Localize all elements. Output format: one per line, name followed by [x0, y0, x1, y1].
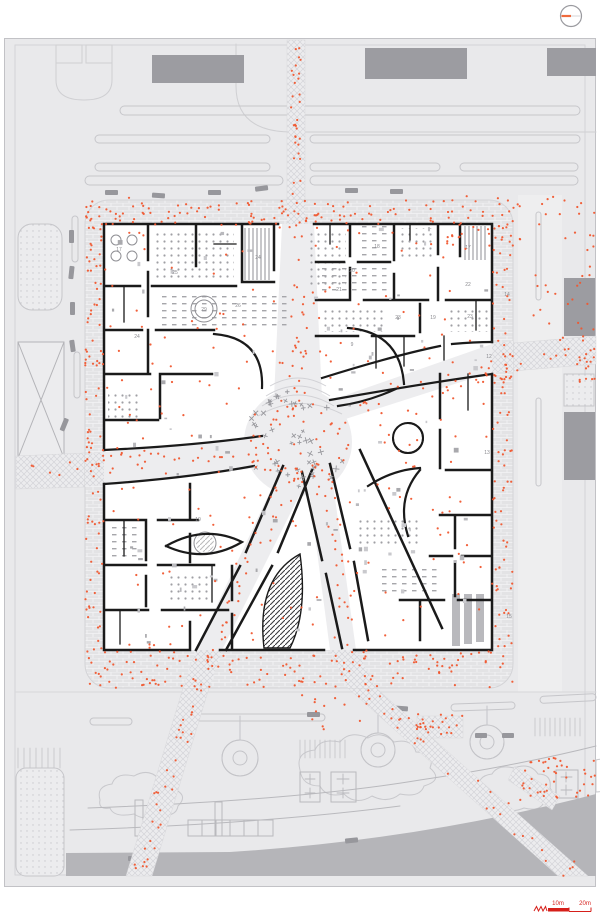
person-dot: [358, 232, 360, 234]
person-dot: [177, 204, 179, 206]
person-dot: [235, 563, 237, 565]
person-dot: [311, 464, 313, 466]
person-dot: [506, 367, 508, 369]
person-dot: [301, 367, 303, 369]
person-dot: [579, 359, 581, 361]
person-dot: [303, 296, 305, 298]
person-dot: [275, 419, 277, 421]
furniture-item: [125, 395, 127, 399]
furniture-item: [137, 549, 142, 552]
person-dot: [335, 564, 337, 566]
person-dot: [87, 211, 89, 213]
person-dot: [118, 350, 120, 352]
person-dot: [498, 203, 500, 205]
furniture-item: [177, 473, 179, 476]
scale-bar: 10m 20m: [534, 901, 591, 912]
person-dot: [497, 588, 499, 590]
furniture-item: [221, 232, 225, 235]
furniture-item: [379, 228, 384, 231]
person-dot: [266, 673, 268, 675]
person-dot: [157, 792, 159, 794]
person-dot: [325, 683, 327, 685]
person-dot: [533, 314, 535, 316]
person-dot: [513, 833, 515, 835]
person-dot: [447, 389, 449, 391]
person-dot: [407, 410, 409, 412]
person-dot: [132, 205, 134, 207]
person-dot: [220, 546, 222, 548]
person-dot: [314, 214, 316, 216]
person-dot: [582, 339, 584, 341]
person-dot: [363, 402, 365, 404]
person-dot: [539, 309, 541, 311]
person-dot: [85, 538, 87, 540]
person-dot: [498, 460, 500, 462]
person-dot: [283, 210, 285, 212]
person-dot: [491, 583, 493, 585]
person-dot: [502, 286, 504, 288]
person-dot: [156, 664, 158, 666]
person-dot: [503, 381, 505, 383]
person-dot: [292, 74, 294, 76]
person-dot: [204, 216, 206, 218]
person-dot: [93, 475, 95, 477]
person-dot: [146, 678, 148, 680]
person-dot: [590, 776, 592, 778]
person-dot: [58, 474, 60, 476]
furniture-item: [326, 522, 328, 525]
person-dot: [121, 673, 123, 675]
person-dot: [99, 298, 101, 300]
person-dot: [413, 661, 415, 663]
person-dot: [451, 235, 453, 237]
person-dot: [275, 489, 277, 491]
person-dot: [458, 236, 460, 238]
person-dot: [350, 595, 352, 597]
person-dot: [485, 436, 487, 438]
person-dot: [567, 303, 569, 305]
person-dot: [302, 356, 304, 358]
person-dot: [336, 246, 338, 248]
person-dot: [379, 695, 381, 697]
person-dot: [316, 493, 318, 495]
person-dot: [136, 310, 138, 312]
person-dot: [542, 761, 544, 763]
person-dot: [182, 731, 184, 733]
person-dot: [338, 606, 340, 608]
person-dot: [451, 199, 453, 201]
person-dot: [405, 462, 407, 464]
person-dot: [370, 214, 372, 216]
person-dot: [359, 720, 361, 722]
person-dot: [95, 463, 97, 465]
person-dot: [292, 193, 294, 195]
person-dot: [261, 604, 263, 606]
person-dot: [454, 435, 456, 437]
person-dot: [482, 215, 484, 217]
person-dot: [289, 667, 291, 669]
person-dot: [555, 772, 557, 774]
person-dot: [99, 611, 101, 613]
person-dot: [347, 617, 349, 619]
person-dot: [417, 713, 419, 715]
person-dot: [100, 236, 102, 238]
person-dot: [503, 464, 505, 466]
person-dot: [102, 520, 104, 522]
person-dot: [96, 360, 98, 362]
person-dot: [415, 242, 417, 244]
person-dot: [297, 341, 299, 343]
person-dot: [506, 414, 508, 416]
person-dot: [280, 470, 282, 472]
furniture-item: [296, 629, 300, 632]
furniture-item: [229, 466, 233, 471]
person-dot: [276, 410, 278, 412]
person-dot: [299, 158, 301, 160]
person-dot: [217, 666, 219, 668]
person-dot: [137, 584, 139, 586]
person-dot: [115, 218, 117, 220]
person-dot: [451, 664, 453, 666]
person-dot: [294, 142, 296, 144]
person-dot: [593, 356, 595, 358]
person-dot: [154, 223, 156, 225]
person-dot: [297, 144, 299, 146]
furniture-item: [210, 435, 212, 438]
person-dot: [448, 726, 450, 728]
person-dot: [467, 217, 469, 219]
furniture-item: [454, 448, 459, 453]
person-dot: [428, 668, 430, 670]
person-dot: [92, 340, 94, 342]
person-dot: [94, 523, 96, 525]
person-dot: [415, 413, 417, 415]
person-dot: [294, 236, 296, 238]
person-dot: [365, 683, 367, 685]
person-dot: [91, 442, 93, 444]
architectural-site-plan-page: 172524262429182021172223192391014121315 …: [0, 0, 600, 920]
person-dot: [90, 249, 92, 251]
person-dot: [592, 328, 594, 330]
person-dot: [422, 718, 424, 720]
person-dot: [429, 654, 431, 656]
furniture-item: [253, 350, 255, 354]
person-dot: [274, 487, 276, 489]
person-dot: [432, 720, 434, 722]
person-dot: [331, 481, 333, 483]
person-dot: [173, 775, 175, 777]
person-dot: [328, 473, 330, 475]
person-dot: [470, 653, 472, 655]
person-dot: [417, 726, 419, 728]
person-dot: [592, 235, 594, 237]
person-dot: [86, 458, 88, 460]
person-dot: [403, 311, 405, 313]
person-dot: [254, 532, 256, 534]
person-dot: [91, 521, 93, 523]
person-dot: [295, 405, 297, 407]
person-dot: [329, 286, 331, 288]
person-dot: [319, 675, 321, 677]
plan-layer: 172524262429182021172223192391014121315: [85, 200, 513, 688]
person-dot: [85, 215, 87, 217]
person-dot: [297, 78, 299, 80]
person-dot: [478, 608, 480, 610]
person-dot: [384, 441, 386, 443]
person-dot: [93, 303, 95, 305]
person-dot: [402, 656, 404, 658]
right-road: [518, 195, 562, 692]
person-dot: [339, 214, 341, 216]
person-dot: [84, 362, 86, 364]
person-dot: [275, 516, 277, 518]
person-dot: [312, 403, 314, 405]
furniture-item: [333, 529, 337, 531]
person-dot: [336, 660, 338, 662]
person-dot: [161, 412, 163, 414]
furniture-item: [351, 371, 355, 373]
person-dot: [539, 791, 541, 793]
person-dot: [506, 541, 508, 543]
person-dot: [545, 284, 547, 286]
person-dot: [298, 680, 300, 682]
person-dot: [399, 718, 401, 720]
person-dot: [529, 787, 531, 789]
person-dot: [93, 227, 95, 229]
person-dot: [472, 226, 474, 228]
person-dot: [580, 327, 582, 329]
person-dot: [161, 221, 163, 223]
person-dot: [347, 444, 349, 446]
person-dot: [151, 821, 153, 823]
person-dot: [166, 769, 168, 771]
person-dot: [149, 647, 151, 649]
person-dot: [103, 459, 105, 461]
person-dot: [253, 217, 255, 219]
person-dot: [187, 655, 189, 657]
furniture-item: [192, 585, 197, 588]
person-dot: [244, 557, 246, 559]
person-dot: [485, 661, 487, 663]
person-dot: [252, 639, 254, 641]
furniture-item: [317, 599, 322, 601]
person-dot: [222, 313, 224, 315]
person-dot: [379, 424, 381, 426]
person-dot: [379, 219, 381, 221]
person-dot: [499, 252, 501, 254]
person-dot: [521, 784, 523, 786]
person-dot: [262, 443, 264, 445]
person-dot: [218, 471, 220, 473]
person-dot: [432, 200, 434, 202]
person-dot: [98, 206, 100, 208]
person-dot: [179, 660, 181, 662]
person-dot: [229, 663, 231, 665]
person-dot: [226, 403, 228, 405]
person-dot: [522, 835, 524, 837]
person-dot: [494, 382, 496, 384]
person-dot: [578, 213, 580, 215]
person-dot: [89, 413, 91, 415]
person-dot: [578, 356, 580, 358]
person-dot: [414, 659, 416, 661]
person-dot: [497, 451, 499, 453]
person-dot: [446, 386, 448, 388]
person-dot: [429, 274, 431, 276]
person-dot: [151, 363, 153, 365]
person-dot: [93, 648, 95, 650]
person-dot: [358, 664, 360, 666]
person-dot: [323, 430, 325, 432]
person-dot: [500, 377, 502, 379]
person-dot: [249, 222, 251, 224]
person-dot: [246, 684, 248, 686]
person-dot: [98, 463, 100, 465]
room-number-label: 20: [349, 268, 355, 274]
person-dot: [590, 349, 592, 351]
person-dot: [495, 284, 497, 286]
person-dot: [246, 561, 248, 563]
person-dot: [255, 466, 257, 468]
person-dot: [109, 210, 111, 212]
person-dot: [587, 365, 589, 367]
site-plan-drawing: 172524262429182021172223192391014121315 …: [0, 0, 600, 920]
person-dot: [298, 56, 300, 58]
person-dot: [174, 215, 176, 217]
person-dot: [305, 220, 307, 222]
person-dot: [174, 222, 176, 224]
person-dot: [367, 409, 369, 411]
furniture-item: [130, 546, 133, 548]
person-dot: [98, 362, 100, 364]
person-dot: [314, 466, 316, 468]
furniture-item: [314, 297, 318, 300]
person-dot: [188, 489, 190, 491]
person-dot: [488, 245, 490, 247]
person-dot: [341, 554, 343, 556]
person-dot: [221, 456, 223, 458]
furniture-item: [138, 558, 143, 560]
furniture-item: [133, 443, 136, 447]
person-dot: [113, 510, 115, 512]
person-dot: [260, 669, 262, 671]
person-dot: [338, 597, 340, 599]
person-dot: [275, 223, 277, 225]
person-dot: [586, 303, 588, 305]
person-dot: [576, 285, 578, 287]
person-dot: [567, 348, 569, 350]
person-dot: [95, 395, 97, 397]
person-dot: [255, 454, 257, 456]
person-dot: [110, 455, 112, 457]
person-dot: [559, 213, 561, 215]
person-dot: [489, 686, 491, 688]
person-dot: [97, 626, 99, 628]
person-dot: [90, 447, 92, 449]
person-dot: [420, 606, 422, 608]
person-dot: [127, 422, 129, 424]
person-dot: [576, 206, 578, 208]
person-dot: [573, 860, 575, 862]
person-dot: [238, 387, 240, 389]
person-dot: [380, 412, 382, 414]
person-dot: [88, 515, 90, 517]
person-dot: [367, 360, 369, 362]
person-dot: [104, 667, 106, 669]
person-dot: [250, 213, 252, 215]
person-dot: [413, 465, 415, 467]
person-dot: [236, 581, 238, 583]
person-dot: [330, 423, 332, 425]
person-dot: [348, 670, 350, 672]
person-dot: [84, 364, 86, 366]
person-dot: [508, 802, 510, 804]
person-dot: [301, 681, 303, 683]
furniture-item: [363, 570, 367, 574]
person-dot: [168, 571, 170, 573]
person-dot: [221, 631, 223, 633]
person-dot: [304, 350, 306, 352]
person-dot: [313, 302, 315, 304]
person-dot: [299, 138, 301, 140]
person-dot: [282, 665, 284, 667]
furniture-item: [358, 489, 360, 492]
person-dot: [85, 391, 87, 393]
person-dot: [441, 511, 443, 513]
person-dot: [164, 681, 166, 683]
person-dot: [88, 227, 90, 229]
person-dot: [387, 211, 389, 213]
person-dot: [226, 621, 228, 623]
person-dot: [524, 770, 526, 772]
person-dot: [296, 472, 298, 474]
furniture-item: [364, 560, 367, 565]
person-dot: [365, 703, 367, 705]
person-dot: [385, 295, 387, 297]
person-dot: [87, 522, 89, 524]
furniture-item: [145, 634, 147, 638]
person-dot: [149, 343, 151, 345]
furniture-item: [480, 345, 483, 348]
person-dot: [337, 433, 339, 435]
person-dot: [565, 354, 567, 356]
person-dot: [279, 423, 281, 425]
room-number-label: 15: [506, 614, 512, 620]
person-dot: [98, 387, 100, 389]
furniture-item: [138, 609, 140, 613]
person-dot: [96, 304, 98, 306]
person-dot: [90, 662, 92, 664]
person-dot: [506, 439, 508, 441]
person-dot: [458, 553, 460, 555]
person-dot: [498, 566, 500, 568]
person-dot: [89, 431, 91, 433]
person-dot: [192, 460, 194, 462]
person-dot: [563, 199, 565, 201]
person-dot: [133, 661, 135, 663]
context-dotted-plot-bottom: [16, 768, 64, 876]
person-dot: [487, 228, 489, 230]
person-dot: [300, 59, 302, 61]
person-dot: [327, 203, 329, 205]
person-dot: [302, 421, 304, 423]
person-dot: [157, 453, 159, 455]
person-dot: [361, 218, 363, 220]
person-dot: [165, 472, 167, 474]
person-dot: [101, 563, 103, 565]
north-circle-icon: [561, 6, 582, 27]
person-dot: [450, 732, 452, 734]
